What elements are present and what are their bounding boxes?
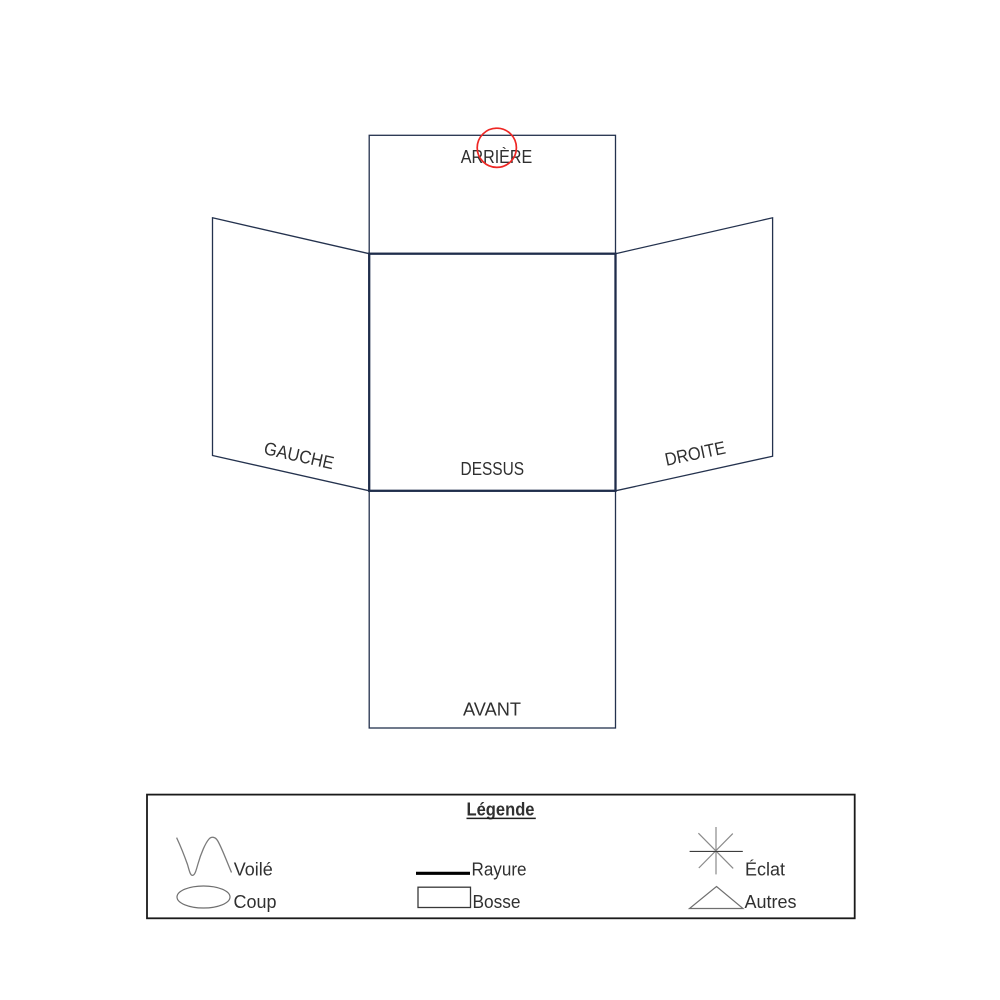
svg-text:DESSUS: DESSUS — [461, 459, 525, 479]
svg-text:Voilé: Voilé — [234, 858, 273, 879]
svg-text:Éclat: Éclat — [745, 858, 786, 879]
svg-text:AVANT: AVANT — [463, 700, 521, 720]
svg-text:Légende: Légende — [467, 799, 535, 820]
svg-text:Autres: Autres — [745, 891, 797, 912]
svg-text:Bosse: Bosse — [473, 891, 521, 912]
svg-text:Rayure: Rayure — [472, 858, 527, 879]
svg-text:ARRIÈRE: ARRIÈRE — [461, 147, 533, 167]
svg-text:Coup: Coup — [234, 891, 277, 912]
